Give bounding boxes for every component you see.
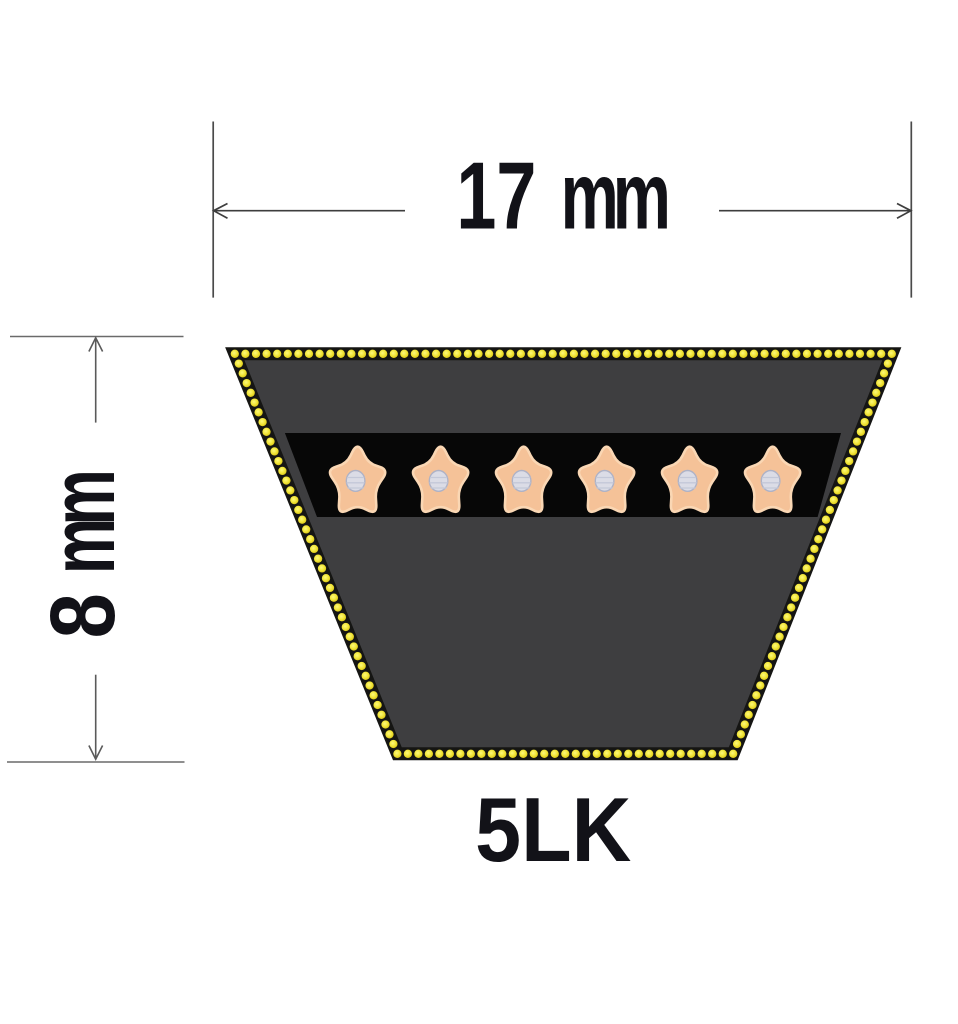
svg-text:mm: mm xyxy=(561,143,667,249)
svg-text:mm: mm xyxy=(31,472,133,574)
svg-text:8: 8 xyxy=(32,593,133,638)
svg-text:17: 17 xyxy=(456,141,536,248)
svg-text:5LK: 5LK xyxy=(475,779,631,881)
